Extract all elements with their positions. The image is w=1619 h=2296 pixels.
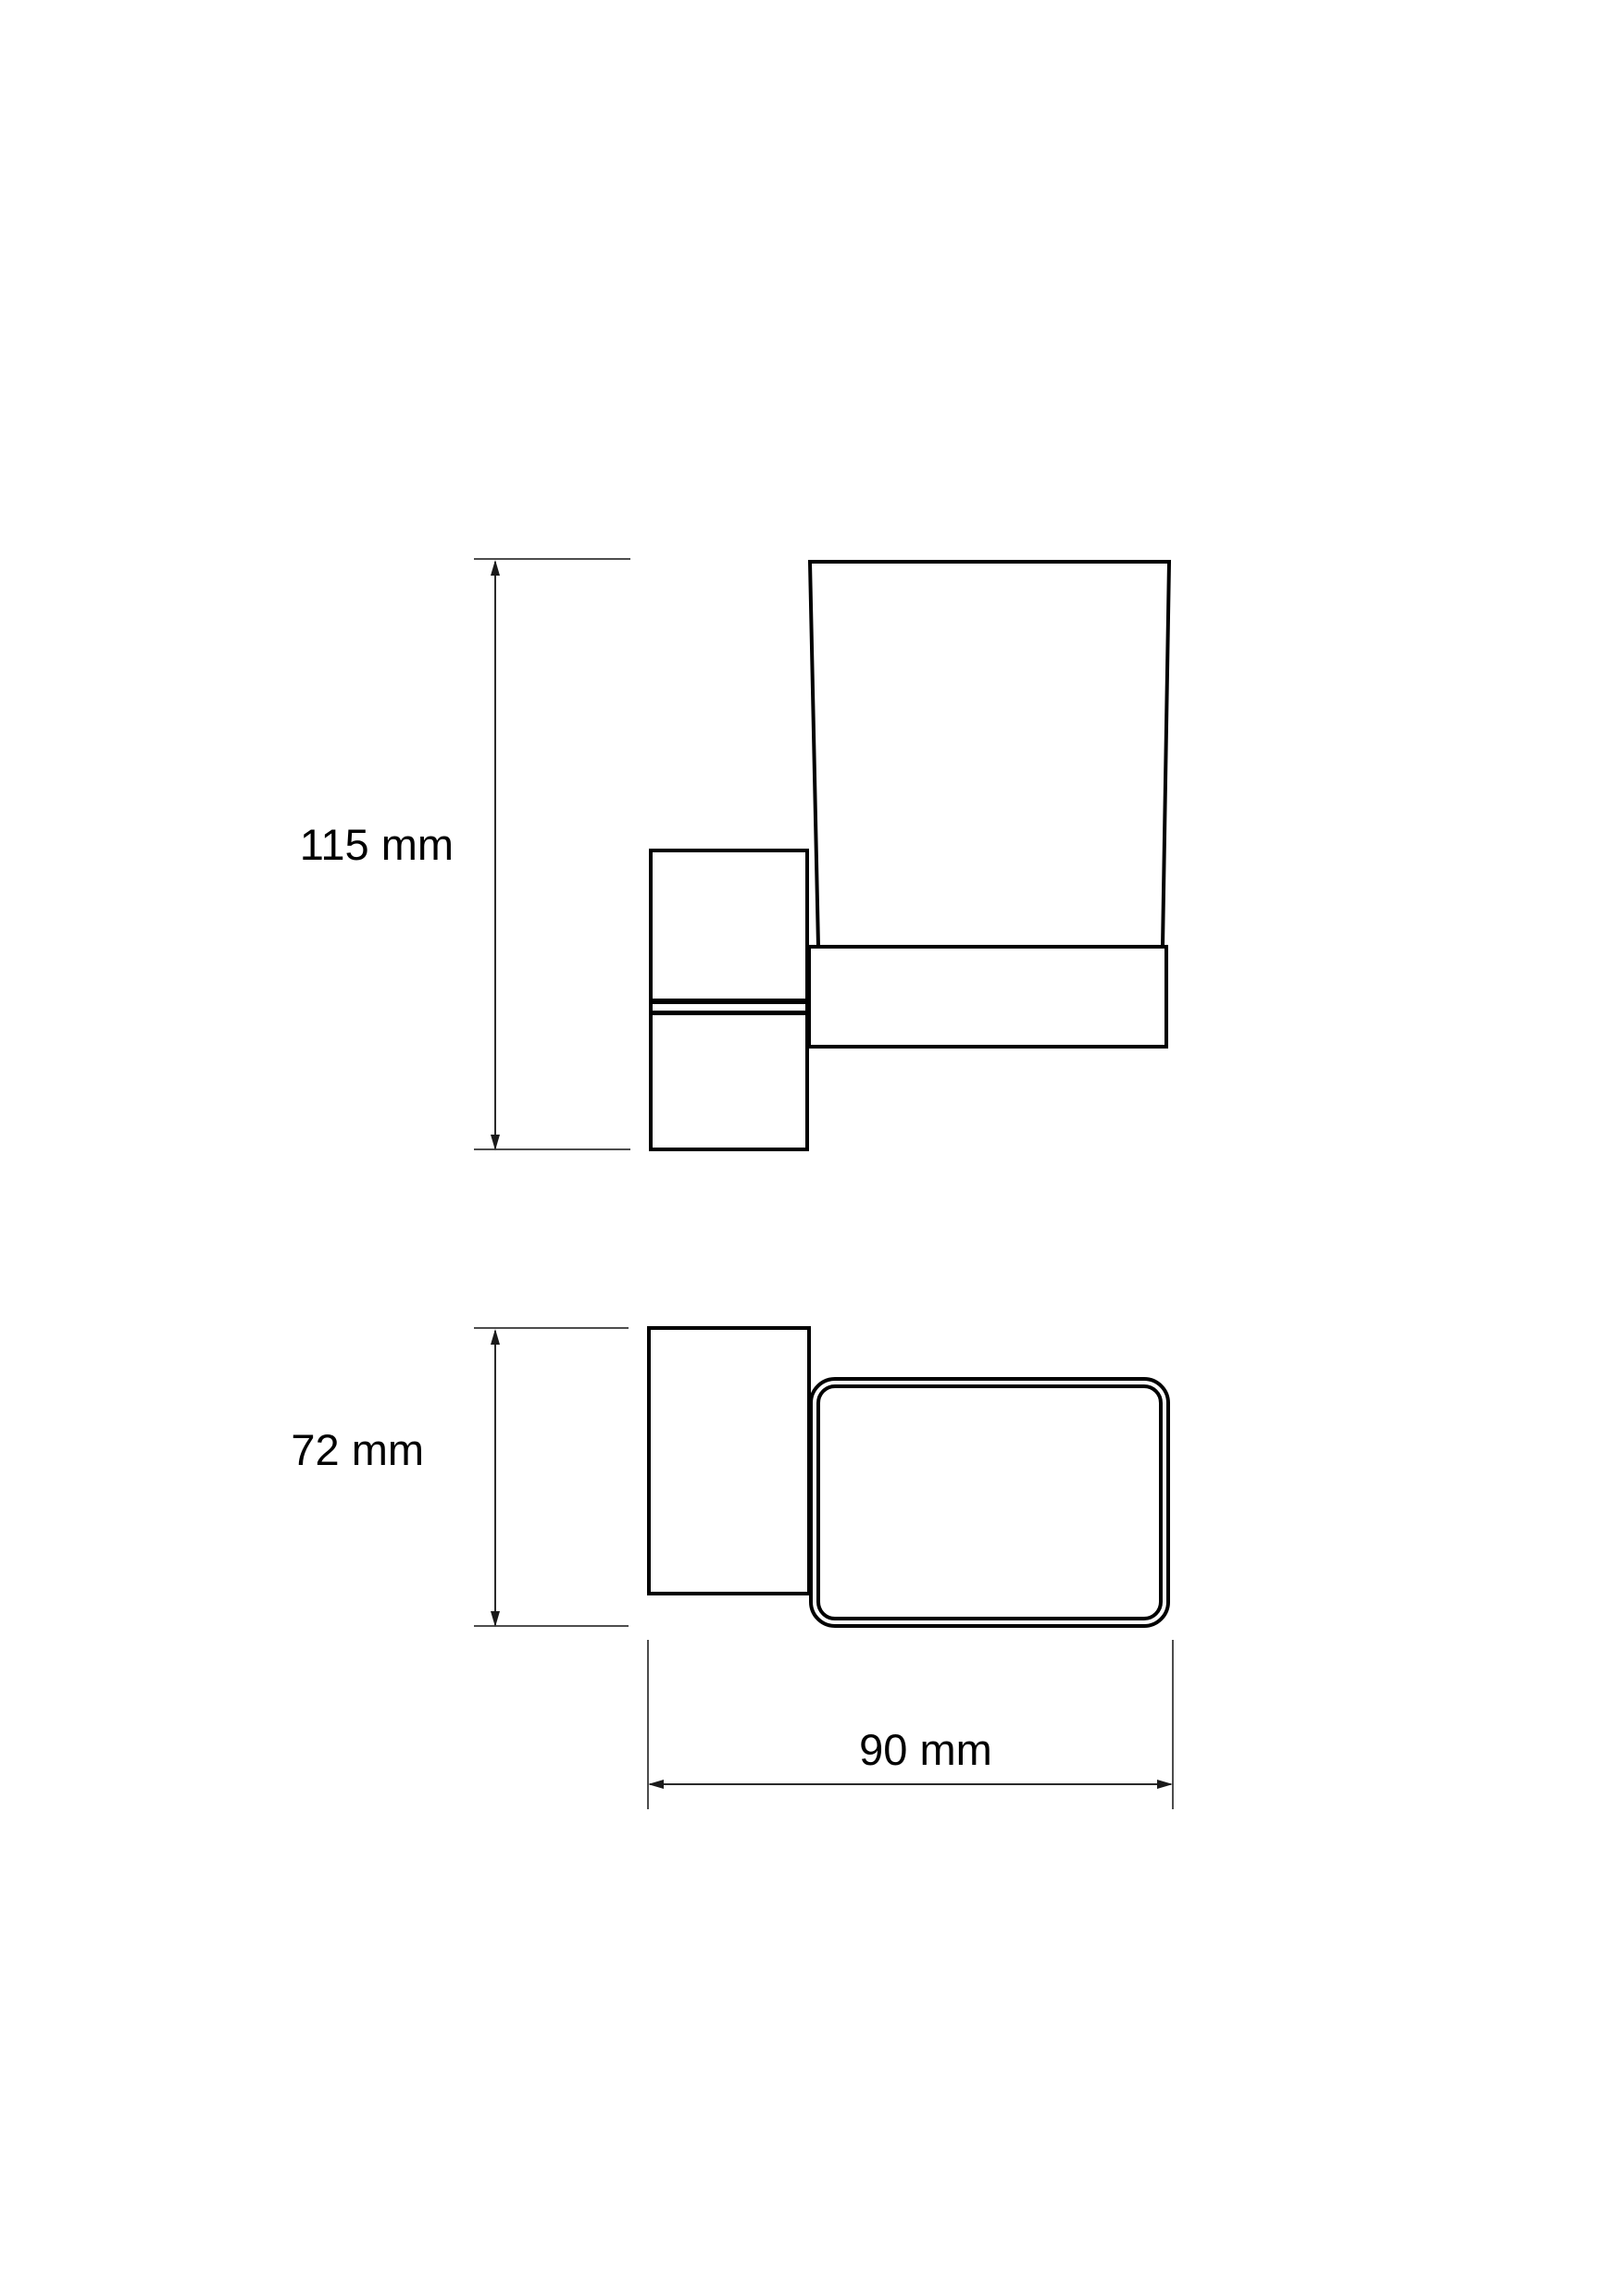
- dim-height-label: 115 mm: [222, 823, 454, 867]
- dim-width-line: [650, 1783, 1171, 1785]
- dim-height-arrow-down: [491, 1135, 500, 1150]
- dim-depth-label: 72 mm: [193, 1428, 424, 1472]
- dim-depth-arrow-down: [491, 1611, 500, 1627]
- dim-height-line: [494, 562, 496, 1148]
- plate-seam-line-lower: [651, 1011, 807, 1015]
- holder-ring-inner-outline: [816, 1384, 1163, 1620]
- cup-outline: [803, 556, 1175, 952]
- technical-drawing-canvas: 115 mm 72 mm 90 mm: [0, 0, 1619, 2296]
- dim-width-label: 90 mm: [810, 1728, 1041, 1772]
- wall-plate-top: [647, 1326, 811, 1595]
- plate-seam-line-upper: [651, 999, 807, 1004]
- dim-depth-line: [494, 1331, 496, 1625]
- dim-height-arrow-up: [491, 560, 500, 576]
- dim-width-arrow-left: [648, 1780, 664, 1789]
- dim-width-arrow-right: [1157, 1780, 1173, 1789]
- dim-depth-arrow-up: [491, 1329, 500, 1345]
- holder-ring-side: [807, 945, 1168, 1049]
